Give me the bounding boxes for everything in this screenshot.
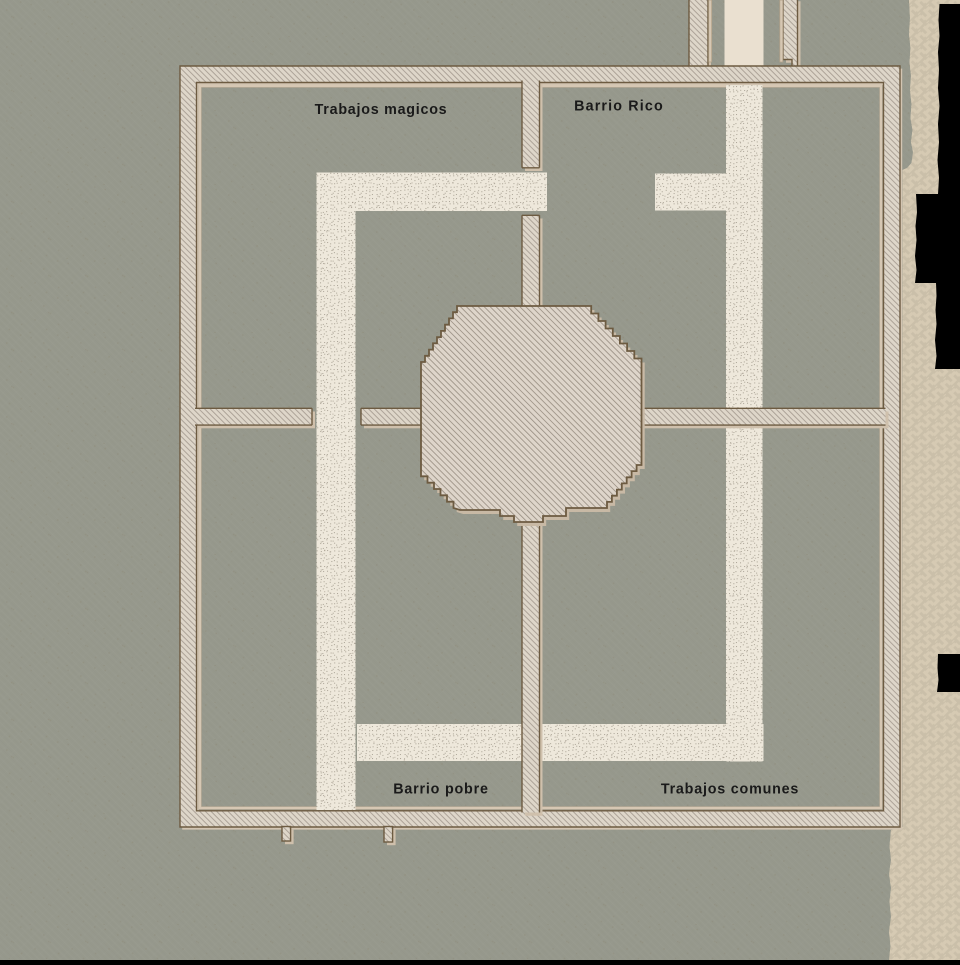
svg-text:Trabajos comunes: Trabajos comunes (661, 782, 799, 798)
svg-text:Barrio Rico: Barrio Rico (574, 99, 664, 115)
svg-text:Trabajos magicos: Trabajos magicos (315, 102, 448, 118)
svg-text:Barrio pobre: Barrio pobre (393, 782, 488, 798)
